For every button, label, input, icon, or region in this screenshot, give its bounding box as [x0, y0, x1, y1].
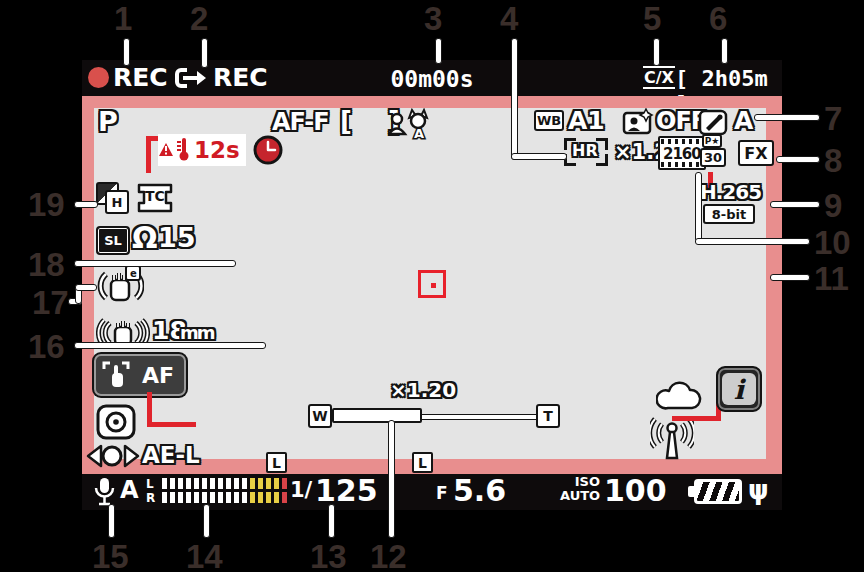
external-recording-icon	[174, 67, 210, 89]
white-balance-value: A1	[568, 106, 605, 135]
top-status-bar: REC REC 00m00s C/X [ 2h05m ]	[82, 60, 782, 96]
camera-live-view-screen: REC REC 00m00s C/X [ 2h05m ] P AF-F [ ]	[82, 60, 782, 510]
bit-depth-badge: 8-bit	[703, 204, 755, 224]
aperture-label: F	[436, 483, 448, 503]
battery-indicator	[694, 479, 742, 504]
frame-size-icon: 2160	[658, 136, 706, 170]
callout-line-9	[770, 201, 820, 208]
sl-indicator: SL	[96, 226, 130, 255]
callout-line-10b	[695, 238, 810, 245]
card-slot-indicator: C/X	[643, 66, 675, 89]
ac-power-icon: ψ	[748, 475, 769, 505]
callout-line-5	[653, 38, 660, 66]
focal-length-unit: mm	[180, 322, 214, 343]
callout-line-13	[328, 504, 335, 538]
quality-badge: P★	[702, 134, 722, 148]
callout-line-18	[74, 260, 236, 267]
callout-line-10a	[695, 172, 702, 242]
record-indicator-icon	[88, 67, 109, 88]
zoom-magnification: ×1.20	[390, 378, 456, 402]
battery-terminal	[688, 486, 694, 497]
external-recording-label: REC	[213, 63, 268, 92]
headphone-volume: 15	[158, 222, 196, 253]
callout-8: 8	[824, 142, 842, 180]
i-menu-button[interactable]: i	[716, 366, 762, 412]
callout-12: 12	[370, 538, 407, 572]
callout-line-3	[435, 38, 442, 64]
temperature-warning-chip: 12s	[158, 134, 246, 166]
callout-7: 7	[824, 100, 842, 138]
shutter-lock-badge: L	[266, 452, 287, 473]
callout-line-8	[776, 156, 820, 163]
bottom-status-bar: A L R 1/ 125 F 5.6 ISO AUTO 100 ψ	[82, 474, 782, 510]
tone-mode-value: H	[112, 195, 123, 210]
callout-16: 16	[28, 328, 65, 366]
callout-line-15	[108, 504, 115, 538]
callout-6: 6	[709, 0, 727, 38]
callout-line-1	[123, 38, 130, 66]
shutter-prefix: 1/	[290, 478, 312, 502]
callout-line-12	[388, 420, 395, 538]
callout-line-16	[74, 342, 266, 349]
callout-18: 18	[28, 246, 65, 284]
highlight-bracket-bottom-right	[672, 378, 721, 421]
svg-text:e: e	[130, 268, 137, 279]
record-indicator-label: REC	[113, 63, 168, 92]
callout-15: 15	[92, 538, 129, 572]
image-area-badge: FX	[738, 140, 774, 166]
channel-right-label: R	[146, 491, 155, 505]
timecode-label: TC	[145, 188, 165, 204]
picture-control-value: A	[734, 106, 753, 135]
video-codec: H.265	[700, 180, 761, 204]
subject-detection-icon: A	[388, 108, 430, 140]
focus-point	[418, 270, 446, 298]
callout-line-17c	[75, 284, 97, 291]
iso-value: 100	[604, 473, 667, 508]
iso-label: ISO	[564, 474, 600, 489]
frame-rate: 30	[700, 148, 726, 167]
electronic-vr-icon: e	[96, 264, 144, 308]
callout-line-14	[203, 504, 210, 538]
callout-19: 19	[28, 186, 65, 224]
temperature-warning-icon	[158, 137, 194, 163]
callout-line-4a	[511, 38, 518, 160]
callout-4: 4	[500, 0, 518, 38]
temperature-countdown: 12s	[194, 137, 240, 163]
callout-13: 13	[310, 538, 347, 572]
audio-level-meter-right	[162, 492, 290, 503]
elapsed-recording-time: 00m00s	[387, 66, 477, 92]
tone-mode-icon: H	[96, 182, 132, 216]
frame-size-value: 2160	[663, 145, 701, 163]
ae-lock-icon	[86, 442, 140, 470]
aperture-value: 5.6	[453, 473, 506, 508]
zoom-fill	[332, 408, 422, 423]
picture-control-icon	[698, 108, 730, 136]
zoom-tele-button[interactable]: T	[536, 404, 560, 428]
callout-3: 3	[424, 0, 442, 38]
touch-af-button[interactable]: AF	[94, 354, 186, 396]
exposure-mode: P	[98, 106, 118, 137]
callout-10: 10	[814, 224, 851, 262]
live-view-area: P AF-F [ ] A WB A1 OFF	[94, 108, 766, 459]
svg-text:A: A	[414, 126, 424, 140]
hi-res-zoom-label: HR	[572, 141, 598, 160]
highlight-bracket-bottom-left	[147, 392, 196, 427]
touch-af-label: AF	[142, 363, 174, 388]
focus-mode: AF-F	[272, 108, 329, 136]
zoom-wide-button[interactable]: W	[308, 404, 332, 428]
callout-line-19	[74, 201, 98, 208]
shutter-speed: 125	[315, 473, 378, 508]
headphone-icon: Ω	[132, 220, 158, 255]
audio-level-meter-left	[162, 478, 290, 489]
callout-line-11	[770, 274, 810, 281]
metering-icon	[96, 404, 136, 440]
callout-11: 11	[814, 260, 849, 298]
iso-mode: AUTO	[560, 488, 600, 503]
callout-1: 1	[114, 0, 132, 38]
callout-line-7	[754, 114, 820, 121]
callout-line-4b	[511, 153, 567, 160]
white-balance-icon: WB	[534, 110, 564, 131]
i-menu-label: i	[734, 374, 744, 405]
aperture-lock-badge: L	[412, 452, 433, 473]
channel-left-label: L	[146, 477, 154, 491]
callout-14: 14	[186, 538, 223, 572]
callout-9: 9	[824, 187, 842, 225]
hi-res-zoom-icon: HR	[564, 138, 608, 166]
callout-2: 2	[190, 0, 208, 38]
manual-illustration: REC REC 00m00s C/X [ 2h05m ] P AF-F [ ]	[0, 0, 864, 572]
callout-5: 5	[643, 0, 661, 38]
mic-sensitivity: A	[120, 476, 139, 504]
timer-clock-icon	[252, 134, 284, 166]
portrait-impression-balance-icon	[622, 108, 658, 136]
ae-lock-label: AE-L	[142, 442, 200, 468]
touch-af-hand-icon	[100, 359, 140, 391]
callout-17: 17	[32, 284, 69, 322]
callout-line-2	[201, 38, 208, 68]
callout-line-6	[721, 38, 728, 64]
